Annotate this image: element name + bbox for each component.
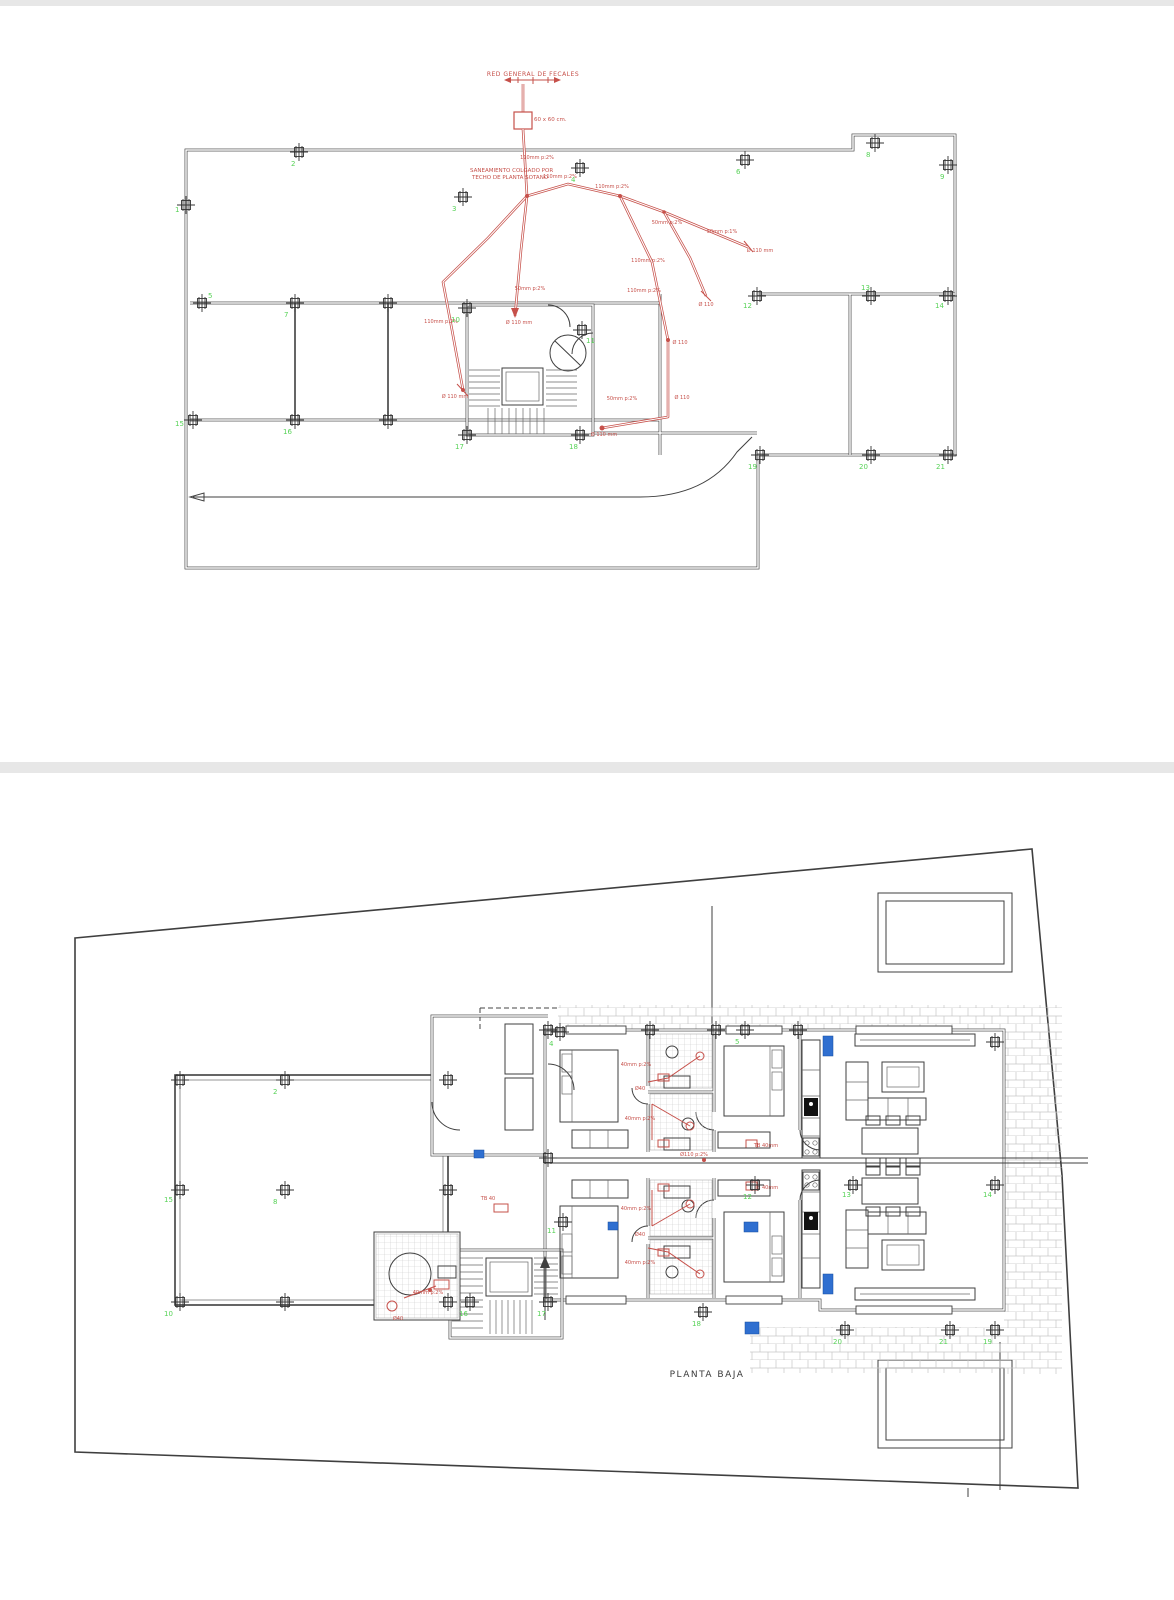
column-number: 15 xyxy=(164,1196,173,1204)
pipe-label: 110mm p:2% xyxy=(520,155,554,161)
building-outline xyxy=(186,135,955,568)
column-marker: 6 xyxy=(736,151,754,176)
column-number: 17 xyxy=(537,1310,546,1318)
pipe-label: 110mm p:2% xyxy=(627,288,661,294)
column-number: 10 xyxy=(451,316,460,324)
column-number: 8 xyxy=(273,1198,277,1206)
arqueta-label: 60 x 60 cm. xyxy=(534,117,567,123)
column-number: 12 xyxy=(743,302,752,310)
scanned-plan-sheet: RED GENERAL DE FECALES 60 x 60 cm. SANEA… xyxy=(0,0,1174,1600)
pipe-label: Ø40 xyxy=(393,1315,403,1322)
column-number: 4 xyxy=(549,1040,554,1048)
column-number: 13 xyxy=(861,284,870,292)
column-number: 16 xyxy=(283,428,292,436)
column-number: 4 xyxy=(571,176,576,184)
column-number: 2 xyxy=(273,1088,277,1096)
pipe-label: Ø 110 xyxy=(672,339,687,346)
pipe-label: 40mm p:2% xyxy=(413,1290,444,1296)
column-number: 15 xyxy=(175,420,184,428)
column-marker xyxy=(276,1293,294,1311)
column-number: 11 xyxy=(586,337,595,345)
pipe-label: Ø 110 mm xyxy=(506,319,533,326)
column-marker xyxy=(171,1071,189,1089)
column-marker xyxy=(379,411,397,429)
column-number: 7 xyxy=(284,311,288,319)
ground-floor-plan: PLANTA BAJA 40mm p:2%Ø4040mm p:2%TB 40mm… xyxy=(75,849,1088,1497)
column-number: 10 xyxy=(164,1310,173,1318)
drainage-note-line1: SANEAMIENTO COLGADO POR xyxy=(470,168,553,174)
flow-arrow xyxy=(511,308,519,318)
column-number: 1 xyxy=(175,206,179,214)
column-marker xyxy=(439,1181,457,1199)
column-marker: 18 xyxy=(569,426,589,451)
column-number: 9 xyxy=(940,173,944,181)
column-number: 17 xyxy=(455,443,464,451)
pipe-label: Ø 110 xyxy=(674,394,689,401)
pipe-labels: 110mm p:2%110mm p:2%110mm p:2%50mm p:2%5… xyxy=(424,155,773,438)
pipe-label: Ø 110 mm xyxy=(442,393,469,400)
column-number: 20 xyxy=(859,463,868,471)
main-network-label: RED GENERAL DE FECALES xyxy=(487,71,579,78)
basement-drainage-plan: RED GENERAL DE FECALES 60 x 60 cm. SANEA… xyxy=(175,71,957,568)
column-number: 2 xyxy=(291,160,295,168)
column-number: 19 xyxy=(983,1338,992,1346)
column-number: 11 xyxy=(547,1227,556,1235)
pipe-label: 40mm p:2% xyxy=(621,1062,652,1068)
column-number: 14 xyxy=(983,1191,992,1199)
pipe-label: Ø 110 mm xyxy=(591,431,618,438)
pipe-label: 50mm p:2% xyxy=(607,396,638,402)
pipe-label: 110mm p:2% xyxy=(631,258,665,264)
column-number: 18 xyxy=(692,1320,701,1328)
column-number: 16 xyxy=(459,1310,468,1318)
oven xyxy=(804,1212,818,1230)
pipe-label: 110mm p:2% xyxy=(595,184,629,190)
column-number: 12 xyxy=(743,1193,752,1201)
pool-top xyxy=(878,893,1012,972)
column-number: 5 xyxy=(735,1038,739,1046)
column-marker: 16 xyxy=(283,411,304,436)
ramp-curve xyxy=(193,437,752,497)
pipe-label: Ø40 xyxy=(635,1231,645,1238)
column-marker: 4 xyxy=(571,159,589,184)
pipe-label: Ø110 p:2% xyxy=(680,1151,708,1158)
pipe-label: TB 40mm xyxy=(753,1143,778,1149)
column-number: 13 xyxy=(842,1191,851,1199)
column-number: 5 xyxy=(208,292,212,300)
pipe-label: Ø 110 xyxy=(698,301,713,308)
column-marker: 2 xyxy=(290,143,308,168)
pool-bottom xyxy=(878,1360,1012,1448)
column-marker: 17 xyxy=(455,426,476,451)
drainage-note-line2: TECHO DE PLANTA SOTANO xyxy=(471,175,549,181)
column-marker: 8 xyxy=(273,1181,294,1206)
pipe-label: 50mm p:1% xyxy=(707,229,738,235)
page-divider xyxy=(0,762,1174,773)
sheet-top-edge xyxy=(0,0,1174,6)
column-marker: 8 xyxy=(866,134,884,159)
pipe-label: 40mm p:2% xyxy=(625,1116,656,1122)
column-marker: 3 xyxy=(452,188,472,213)
drainage-network xyxy=(443,77,753,431)
column-marker: 12 xyxy=(743,287,766,310)
pipe-label: 50mm p:2% xyxy=(652,220,683,226)
arqueta-box xyxy=(514,112,532,129)
column-number: 8 xyxy=(866,151,870,159)
column-number: 3 xyxy=(452,205,456,213)
pipe-label: 40mm p:2% xyxy=(625,1260,656,1266)
column-number: 14 xyxy=(935,302,944,310)
column-number: 21 xyxy=(939,1338,948,1346)
column-marker: 15 xyxy=(164,1181,189,1204)
stair-treads xyxy=(469,370,577,434)
column-number: 20 xyxy=(833,1338,842,1346)
pipe-label: Ø40 xyxy=(635,1085,645,1092)
pipe-label: 50mm p:2% xyxy=(515,286,546,292)
pipe-label: TB 40 xyxy=(480,1196,495,1202)
column-marker: 7 xyxy=(284,294,304,319)
column-marker: 20 xyxy=(859,446,880,471)
column-number: 19 xyxy=(748,463,757,471)
column-marker: 15 xyxy=(175,411,202,429)
pipe-label: Ø 110 mm xyxy=(747,247,774,254)
architectural-plans: RED GENERAL DE FECALES 60 x 60 cm. SANEA… xyxy=(0,0,1174,1600)
oven xyxy=(804,1098,818,1116)
column-number: 6 xyxy=(736,168,741,176)
column-number: 18 xyxy=(569,443,578,451)
pipe-label: TB 40mm xyxy=(753,1185,778,1191)
pipe-label: 40mm p:2% xyxy=(621,1206,652,1212)
column-number: 21 xyxy=(936,463,945,471)
plan-title: PLANTA BAJA xyxy=(670,1370,745,1380)
column-marker xyxy=(379,294,397,312)
